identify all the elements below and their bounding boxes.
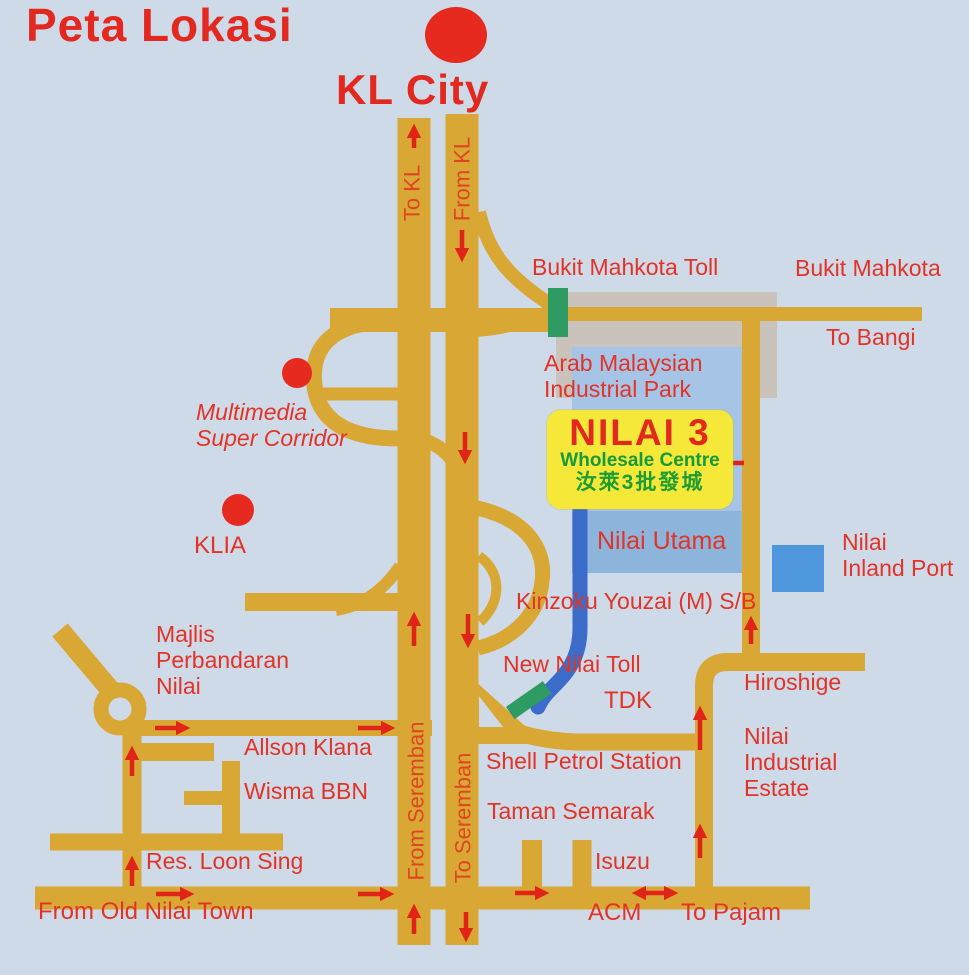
label-shell-petrol-station: Shell Petrol Station: [486, 749, 682, 775]
label-hiroshige: Hiroshige: [744, 670, 841, 696]
location-map: Peta Lokasi KL City To KL From KL From S…: [0, 0, 969, 975]
label-nilai-inland-port: Nilai Inland Port: [842, 530, 953, 582]
nilai3-highlight-box: NILAI 3 Wholesale Centre 汝萊3批發城: [547, 410, 733, 509]
msc-dot: [282, 358, 312, 388]
road-diagonal: [60, 630, 113, 693]
interchange2-inner: [479, 556, 496, 622]
label-bukit-mahkota-toll: Bukit Mahkota Toll: [532, 255, 718, 281]
nilai-inland-port-marker: [772, 545, 824, 592]
label-to-bangi: To Bangi: [826, 325, 916, 351]
label-allson-klana: Allson Klana: [244, 735, 372, 761]
kl-city-dot: [425, 7, 487, 63]
label-to-kl: To KL: [401, 165, 426, 221]
label-to-pajam: To Pajam: [681, 900, 781, 927]
label-kl-city: KL City: [336, 66, 489, 113]
label-res-loon-sing: Res. Loon Sing: [146, 849, 303, 875]
label-tdk: TDK: [604, 688, 652, 715]
label-nilai3: NILAI 3: [547, 414, 733, 451]
label-from-seremban: From Seremban: [405, 722, 430, 881]
label-nilai-industrial-estate: Nilai Industrial Estate: [744, 724, 837, 801]
label-klia: KLIA: [194, 533, 246, 560]
label-nilai-utama: Nilai Utama: [597, 527, 726, 555]
bukit-mahkota-toll-marker: [548, 288, 568, 337]
label-multimedia-super-corridor: Multimedia Super Corridor: [196, 400, 347, 452]
label-new-nilai-toll: New Nilai Toll: [503, 652, 641, 678]
interchange2-bulge: [477, 508, 543, 648]
map-graphics: [0, 0, 969, 975]
label-acm: ACM: [588, 900, 641, 927]
label-from-old-nilai-town: From Old Nilai Town: [38, 899, 254, 926]
label-majlis-perbandaran-nilai: Majlis Perbandaran Nilai: [156, 622, 289, 699]
label-isuzu: Isuzu: [595, 849, 650, 875]
page-title: Peta Lokasi: [26, 0, 293, 52]
label-to-seremban: To Seremban: [452, 753, 477, 884]
roundabout: [101, 690, 139, 728]
label-kinzoku-youzai: Kinzoku Youzai (M) S/B: [516, 589, 756, 615]
label-taman-semarak: Taman Semarak: [487, 799, 654, 825]
label-bukit-mahkota: Bukit Mahkota: [795, 256, 941, 282]
label-wisma-bbn: Wisma BBN: [244, 779, 368, 805]
road-network: [35, 114, 922, 945]
klia-dot: [222, 494, 254, 526]
label-arab-malaysian-industrial-park: Arab Malaysian Industrial Park: [544, 351, 703, 403]
label-wholesale-centre: Wholesale Centre: [547, 451, 733, 471]
label-nilai3-chinese: 汝萊3批發城: [547, 471, 733, 495]
label-from-kl: From KL: [451, 137, 476, 221]
